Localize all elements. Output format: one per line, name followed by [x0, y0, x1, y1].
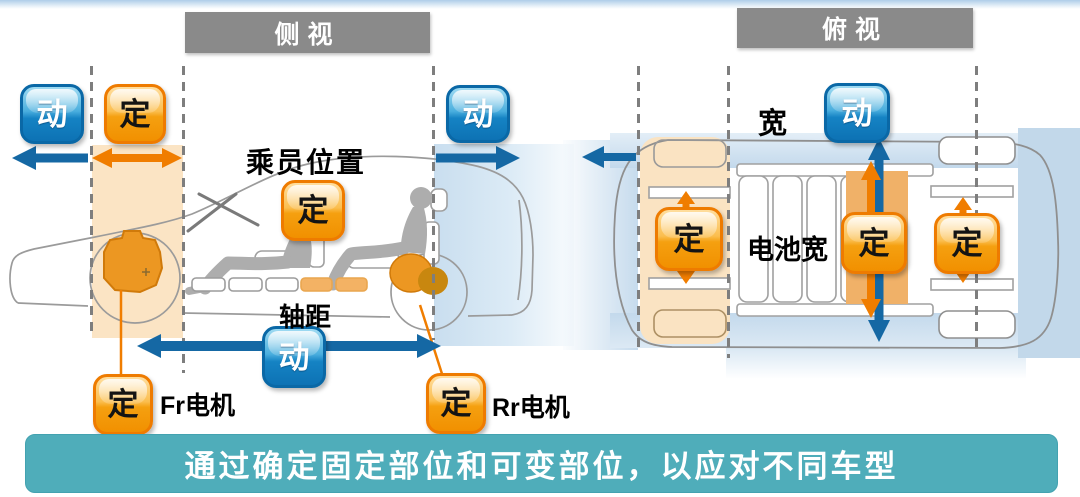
side-dashed-line-rear-axle — [432, 66, 435, 340]
summary-banner: 通过确定固定部位和可变部位，以应对不同车型 — [25, 434, 1058, 493]
badge-text: 定 — [952, 228, 983, 259]
badge-fixed-rear-motor: 定 — [426, 373, 486, 434]
top-lower-fade-band — [726, 347, 1026, 379]
rear-motor-label: Rr电机 — [492, 388, 570, 424]
badge-variable-rear-overhang: 动 — [446, 85, 510, 143]
badge-text: 动 — [463, 99, 494, 130]
badge-fixed-front-section: 定 — [104, 84, 166, 144]
badge-text: 定 — [859, 228, 890, 259]
side-dashed-line-front-bumper — [90, 66, 93, 338]
wheelbase-label: 轴距 — [279, 297, 331, 334]
badge-variable-front-overhang: 动 — [20, 84, 84, 144]
top-rear-variable-band — [1018, 128, 1080, 358]
front-motor-label: Fr电机 — [160, 386, 235, 422]
badge-text: 动 — [279, 342, 310, 373]
badge-text: 定 — [108, 389, 139, 420]
badge-fixed-battery-width: 定 — [841, 212, 907, 274]
top-view-header: 俯视 — [737, 8, 973, 48]
battery-width-label: 电池宽 — [747, 228, 828, 267]
badge-fixed-front-motor: 定 — [93, 374, 153, 435]
badge-variable-width: 动 — [824, 83, 890, 143]
top-dashed-line-front-right — [727, 66, 730, 358]
badge-fixed-front-tread: 定 — [655, 207, 723, 271]
top-dashed-line-rear — [975, 66, 978, 350]
badge-text: 定 — [674, 224, 705, 255]
badge-text: 动 — [842, 98, 873, 129]
summary-banner-text: 通过确定固定部位和可变部位，以应对不同车型 — [185, 441, 899, 486]
badge-text: 动 — [37, 99, 68, 130]
passenger-position-label: 乘员位置 — [246, 141, 366, 181]
platform-diagram-canvas: 侧视 俯视 动 定 动 定 动 定 定 动 定 定 定 乘员位置 轴距 Fr电机… — [0, 0, 1080, 497]
side-rear-variable-band — [434, 144, 574, 346]
floor-battery-modules — [192, 278, 367, 291]
steering-column — [188, 194, 258, 231]
top-view-header-label: 俯视 — [822, 10, 888, 46]
side-view-header: 侧视 — [185, 12, 430, 53]
side-dashed-line-front-axle — [182, 66, 185, 373]
top-dashed-line-front-left — [637, 66, 640, 352]
front-overhang-variable-arrow — [12, 146, 88, 170]
badge-fixed-rear-tread: 定 — [934, 213, 1000, 274]
side-front-fixed-band — [92, 145, 183, 338]
badge-text: 定 — [441, 388, 472, 419]
badge-fixed-passenger-position: 定 — [281, 180, 345, 241]
badge-text: 定 — [120, 99, 151, 130]
width-label: 宽 — [758, 100, 787, 142]
badge-text: 定 — [298, 195, 329, 226]
badge-variable-wheelbase: 动 — [262, 326, 326, 388]
side-view-header-label: 侧视 — [274, 15, 340, 51]
